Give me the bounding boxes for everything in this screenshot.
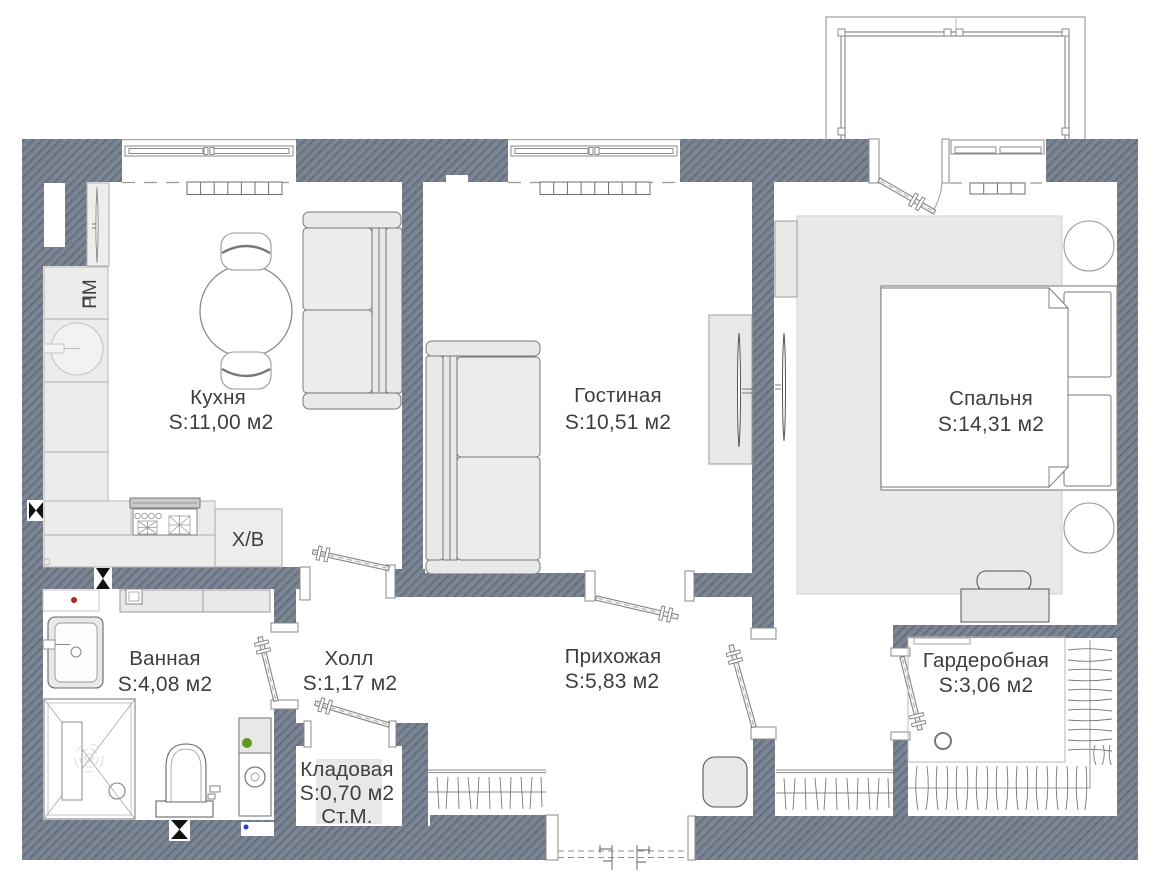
svg-text:S:0,70 м2: S:0,70 м2: [300, 782, 394, 805]
svg-text:Гостиная: Гостиная: [574, 384, 662, 407]
svg-text:Прихожая: Прихожая: [565, 645, 662, 668]
svg-text:S:5,83 м2: S:5,83 м2: [565, 670, 659, 693]
svg-text:Гардеробная: Гардеробная: [923, 649, 1049, 672]
svg-text:Ст.М.: Ст.М.: [321, 805, 372, 828]
svg-text:Ванная: Ванная: [129, 647, 200, 670]
svg-text:S:14,31 м2: S:14,31 м2: [938, 413, 1044, 436]
svg-text:Кухня: Кухня: [190, 386, 246, 409]
svg-text:S:1,17 м2: S:1,17 м2: [303, 672, 397, 695]
svg-text:S:4,08 м2: S:4,08 м2: [118, 673, 212, 696]
svg-text:ПМ: ПМ: [80, 279, 101, 308]
svg-text:S:10,51 м2: S:10,51 м2: [565, 411, 671, 434]
svg-text:Х/В: Х/В: [232, 529, 264, 551]
svg-text:S:11,00 м2: S:11,00 м2: [169, 411, 274, 434]
svg-text:Кладовая: Кладовая: [300, 758, 393, 781]
svg-text:S:3,06 м2: S:3,06 м2: [939, 674, 1033, 697]
svg-text:Холл: Холл: [324, 647, 373, 670]
svg-text:Спальня: Спальня: [949, 387, 1033, 410]
